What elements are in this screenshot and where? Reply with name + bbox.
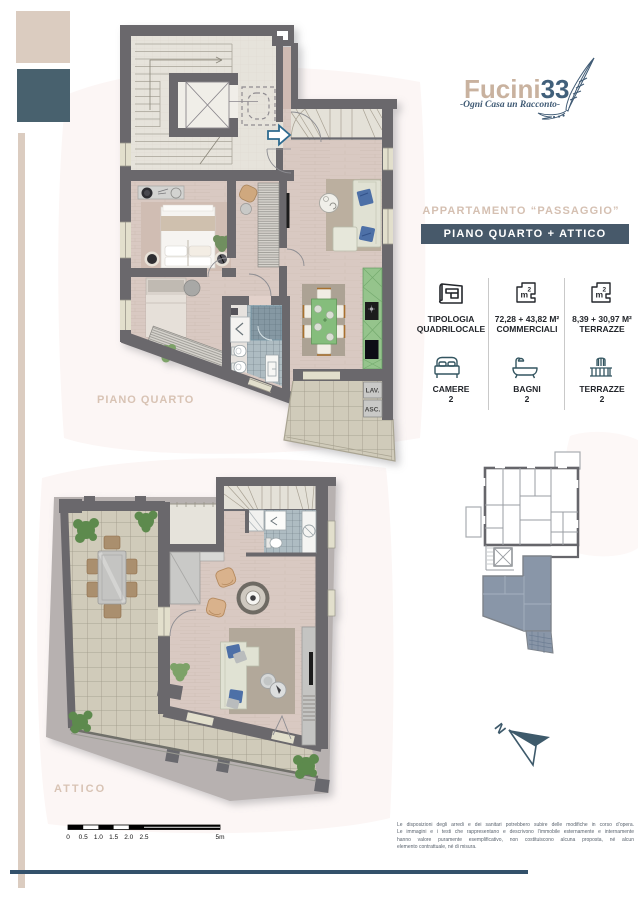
svg-text:2.0: 2.0 [124,834,133,841]
svg-text:LAV.: LAV. [366,388,380,395]
svg-text:2.5: 2.5 [139,834,148,841]
svg-text:1.0: 1.0 [94,834,103,841]
svg-text:N: N [491,720,509,737]
svg-text:5m: 5m [215,834,224,841]
svg-text:0.5: 0.5 [79,834,88,841]
svg-text:1.5: 1.5 [109,834,118,841]
svg-text:0: 0 [66,834,70,841]
svg-text:ASC.: ASC. [365,407,381,414]
